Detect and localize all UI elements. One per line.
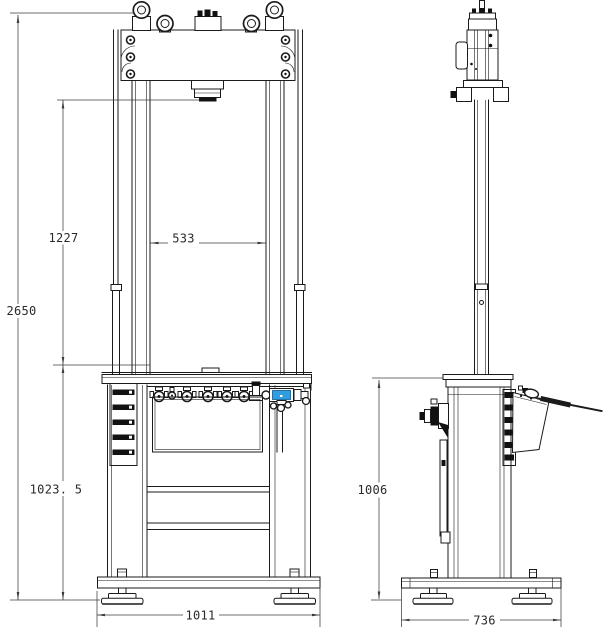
front-base <box>98 569 321 604</box>
knob <box>303 398 310 405</box>
ram-pressure-pad <box>199 98 217 102</box>
side-head-assembly <box>451 1 509 102</box>
front-access-panel <box>153 397 263 452</box>
rod-coupler <box>476 284 488 290</box>
dimension-table-height-front: 1023. 5 <box>29 481 84 497</box>
pillar-cabinet <box>448 387 511 578</box>
front-legs <box>108 385 311 577</box>
port-fitting <box>488 9 492 14</box>
port-fitting <box>198 11 203 18</box>
cross-rail <box>147 523 270 530</box>
dimension-base-depth: 736 <box>469 613 500 628</box>
knob <box>262 391 270 399</box>
side-column <box>475 100 489 375</box>
front-view <box>98 2 321 604</box>
dim-text-table-height-front: 1023. 5 <box>30 483 83 497</box>
dimension-overall-height: 2650 <box>4 304 40 318</box>
cross-rail <box>147 487 270 493</box>
technical-drawing-canvas: 2650 1227 533 1023. 5 1011 1006 736 <box>0 0 606 631</box>
display-digit <box>280 395 283 397</box>
dim-text-overall-height: 2650 <box>6 304 36 318</box>
dim-text-between-columns: 533 <box>172 232 195 246</box>
port-fitting <box>472 9 476 14</box>
junction-box <box>456 42 468 69</box>
dimension-base-width: 1011 <box>183 609 219 623</box>
clamp-block <box>451 91 457 98</box>
dimension-between-columns: 533 <box>168 232 199 246</box>
pin-hole <box>480 301 484 305</box>
two-view-press-drawing: 2650 1227 533 1023. 5 1011 1006 736 <box>0 0 606 631</box>
dim-text-base-width: 1011 <box>185 609 215 623</box>
port-fitting <box>480 8 485 13</box>
port-fitting <box>213 11 218 17</box>
dimension-ram-to-table: 1227 <box>46 231 82 245</box>
column-coupler <box>111 285 122 291</box>
control-bracket <box>513 386 602 453</box>
side-motor-knob <box>420 399 449 438</box>
port-fitting <box>205 10 211 18</box>
cylinder-body <box>467 30 498 80</box>
side-view <box>402 1 602 605</box>
dimension-table-height-side: 1006 <box>354 483 392 498</box>
table-stop-plate <box>202 368 219 373</box>
louver-panel-front <box>110 384 137 466</box>
dim-text-base-depth: 736 <box>473 614 496 628</box>
cylinder-port-block <box>195 10 221 31</box>
dim-text-table-height-side: 1006 <box>357 483 387 497</box>
elbow-fitting <box>294 390 301 401</box>
crosshead-beam <box>121 30 295 81</box>
hydraulic-ram <box>192 81 224 102</box>
crosshead-profile <box>464 81 503 88</box>
dim-text-ram-to-table: 1227 <box>48 231 78 245</box>
column-coupler <box>295 285 306 291</box>
